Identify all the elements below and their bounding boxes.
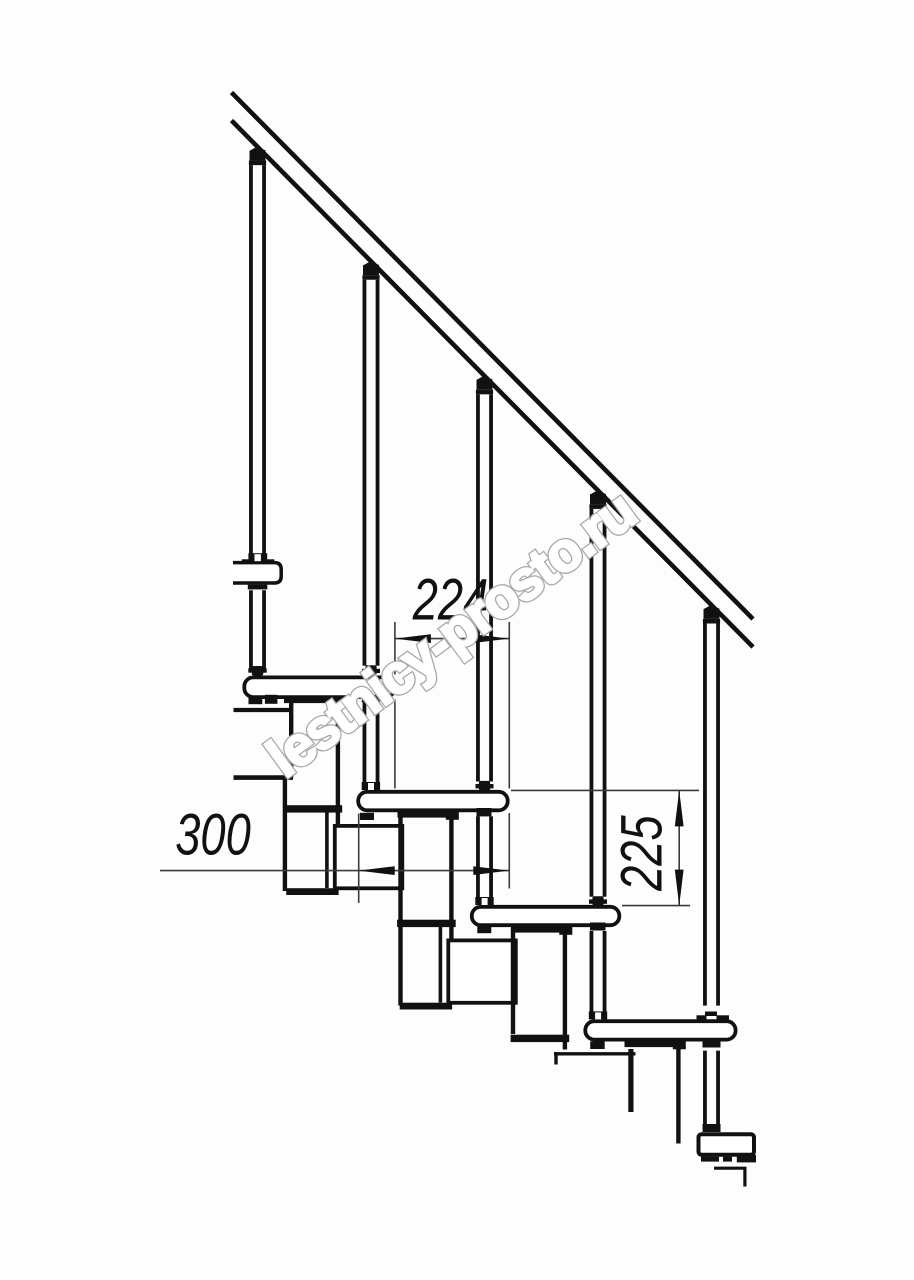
svg-text:300: 300 — [175, 803, 251, 868]
svg-text:225: 225 — [610, 814, 675, 891]
